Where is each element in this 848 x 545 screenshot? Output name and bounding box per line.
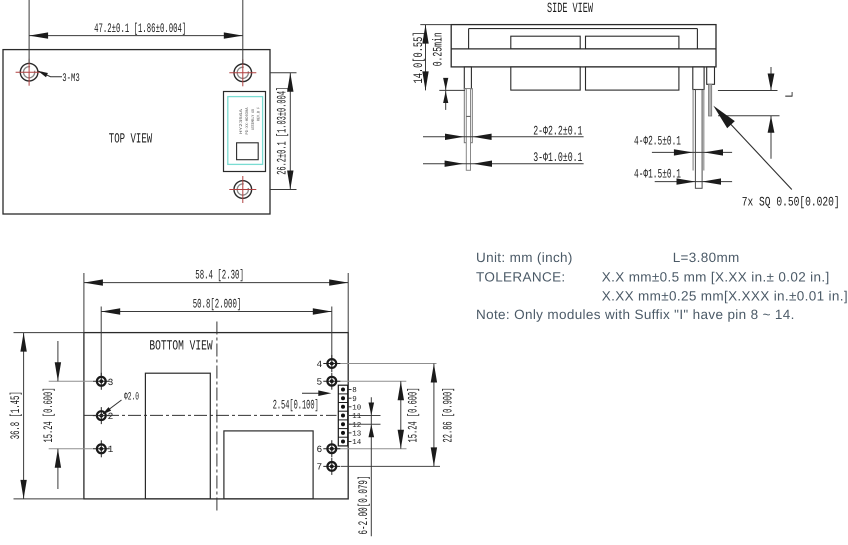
svg-text:2-Φ2.2±0.1: 2-Φ2.2±0.1 [533,123,582,138]
svg-text:SIDE VIEW: SIDE VIEW [547,1,593,17]
svg-text:TOP VIEW: TOP VIEW [109,131,153,147]
svg-text:9: 9 [352,395,357,404]
svg-text:0.25min: 0.25min [431,32,446,66]
svg-text:BOTTOM VIEW: BOTTOM VIEW [149,339,213,355]
svg-text:4-Φ1.5±0.1: 4-Φ1.5±0.1 [634,166,681,181]
svg-text:47.2±0.1 [1.86±0.004]: 47.2±0.1 [1.86±0.004] [94,21,186,36]
svg-text:Φ2.0: Φ2.0 [124,392,139,404]
svg-text:X.X mm±0.5 mm [X.XX in.± 0.02: X.X mm±0.5 mm [X.XX in.± 0.02 in.] [602,269,830,284]
svg-text:3: 3 [108,377,114,388]
svg-text:14: 14 [352,439,362,447]
svg-text:4: 4 [317,359,323,370]
svg-text:13: 13 [352,430,362,439]
svg-text:6: 6 [317,444,323,455]
svg-text:1: 1 [108,444,114,455]
svg-text:58.4 [2.30]: 58.4 [2.30] [195,267,244,282]
svg-text:50.8[2.000]: 50.8[2.000] [193,297,242,312]
svg-text:TOLERANCE:: TOLERANCE: [476,269,566,284]
svg-text:22.86 [0.900]: 22.86 [0.900] [441,388,456,443]
svg-text:12: 12 [352,421,361,430]
svg-text:8: 8 [352,386,357,395]
svg-text:2.54[0.100]: 2.54[0.100] [273,397,319,412]
svg-text:X.XX mm±0.25 mm[X.XXX in.±0.01: X.XX mm±0.25 mm[X.XXX in.±0.01 in.] [602,289,848,304]
svg-text:ASSEMBLY AB: ASSEMBLY AB [251,109,256,130]
svg-text:7x SQ 0.50[0.020]: 7x SQ 0.50[0.020] [742,194,840,209]
svg-text:6-2.00[0.079]: 6-2.00[0.079] [356,476,371,535]
svg-text:HY2356A: HY2356A [239,108,244,134]
svg-text:L=3.80mm: L=3.80mm [673,250,740,265]
svg-text:14.0[0.55]: 14.0[0.55] [411,32,426,84]
svg-text:4-Φ2.5±0.1: 4-Φ2.5±0.1 [634,133,681,148]
svg-text:Unit: mm (inch): Unit: mm (inch) [476,250,573,265]
svg-text:36.8 [1.45]: 36.8 [1.45] [8,391,23,439]
svg-text:2: 2 [108,411,114,422]
svg-text:PD-XX-HD030A: PD-XX-HD030A [245,107,250,135]
svg-text:L: L [785,91,797,98]
svg-text:11: 11 [352,413,362,421]
svg-text:REV.B F: REV.B F [257,107,262,121]
svg-text:15.24 [0.600]: 15.24 [0.600] [41,388,56,443]
svg-text:3-Φ1.0±0.1: 3-Φ1.0±0.1 [533,150,582,165]
svg-text:3-M3: 3-M3 [62,72,80,85]
svg-text:26.2±0.1 [1.03±0.004]: 26.2±0.1 [1.03±0.004] [274,87,289,175]
svg-text:5: 5 [317,377,323,388]
svg-text:7: 7 [317,462,323,473]
svg-text:10: 10 [352,404,362,413]
svg-text:15.24 [0.600]: 15.24 [0.600] [405,388,420,443]
svg-text:Note: Only modules with Suffix: Note: Only modules with Suffix "I" have … [476,307,795,322]
